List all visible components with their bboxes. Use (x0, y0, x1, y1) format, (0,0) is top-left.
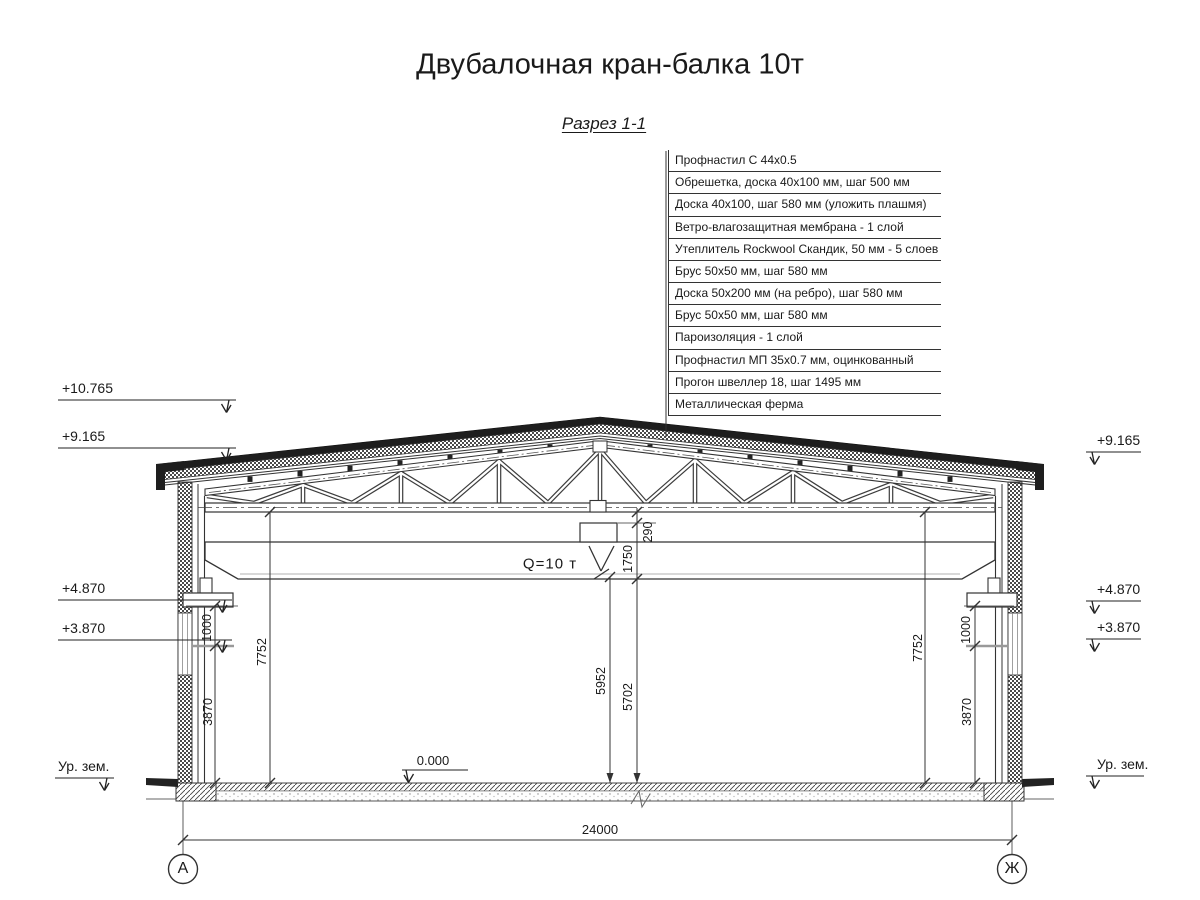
dim-1000-right-label: 1000 (959, 616, 973, 644)
dim-3870-right-label: 3870 (960, 698, 974, 726)
drawing-sheet: Двубалочная кран-балка 10т Разрез 1-1 Пр… (0, 0, 1200, 900)
dim-floor-level-label: 0.000 (417, 753, 450, 768)
elevation-label-right: +4.870 (1097, 581, 1140, 599)
right-wall (996, 482, 1023, 783)
crane-trolley (580, 523, 617, 542)
elevation-label-left: +4.870 (62, 580, 105, 598)
elevation-label-right: +3.870 (1097, 619, 1140, 637)
dim-span-label: 24000 (582, 822, 618, 837)
callout-row: Обрешетка, доска 40х100 мм, шаг 500 мм (669, 172, 941, 194)
dim-5952-label: 5952 (594, 667, 608, 695)
elevation-label-right: +9.165 (1097, 432, 1140, 450)
roof-layers-callout: Профнастил С 44х0.5 Обрешетка, доска 40х… (668, 150, 941, 416)
dim-290-label: 290 (641, 522, 655, 543)
callout-row: Доска 40х100, шаг 580 мм (уложить плашмя… (669, 194, 941, 216)
crane-capacity-label: Q=10 т (523, 556, 577, 573)
dim-3870-left-label: 3870 (201, 698, 215, 726)
callout-row: Брус 50х50 мм, шаг 580 мм (669, 261, 941, 283)
dim-7752-right-label: 7752 (911, 634, 925, 662)
axis-marker-zh: Ж (1005, 860, 1020, 878)
callout-row: Брус 50х50 мм, шаг 580 мм (669, 305, 941, 327)
crane-bridge (205, 542, 995, 579)
ground-level-label-left: Ур. зем. (58, 758, 109, 776)
dim-1000-left-label: 1000 (200, 614, 214, 642)
rail-block (590, 501, 606, 513)
ridge-post (593, 441, 607, 452)
dim-7752-left-label: 7752 (255, 638, 269, 666)
section-label: Разрез 1-1 (562, 114, 646, 134)
axis-marker-a: А (178, 860, 189, 878)
elevation-label-left: +9.165 (62, 428, 105, 446)
callout-row: Профнастил МП 35х0.7 мм, оцинкованный (669, 350, 941, 372)
callout-row: Профнастил С 44х0.5 (669, 150, 941, 172)
callout-row: Пароизоляция - 1 слой (669, 327, 941, 349)
callout-row: Металлическая ферма (669, 394, 941, 416)
floor-slab (146, 778, 1054, 807)
callout-row: Ветро-влагозащитная мембрана - 1 слой (669, 217, 941, 239)
dim-5702-label: 5702 (621, 683, 635, 711)
crane-consoles (183, 578, 1017, 607)
ground-level-label-right: Ур. зем. (1097, 756, 1148, 774)
section-drawing (0, 0, 1200, 900)
callout-row: Утеплитель Rockwool Скандик, 50 мм - 5 с… (669, 239, 941, 261)
callout-row: Доска 50х200 мм (на ребро), шаг 580 мм (669, 283, 941, 305)
axis-markers (169, 855, 1027, 884)
callout-row: Прогон швеллер 18, шаг 1495 мм (669, 372, 941, 394)
elevation-label-left: +10.765 (62, 380, 113, 398)
elevation-label-left: +3.870 (62, 620, 105, 638)
page-title: Двубалочная кран-балка 10т (416, 49, 804, 82)
dim-1750-label: 1750 (621, 545, 635, 573)
